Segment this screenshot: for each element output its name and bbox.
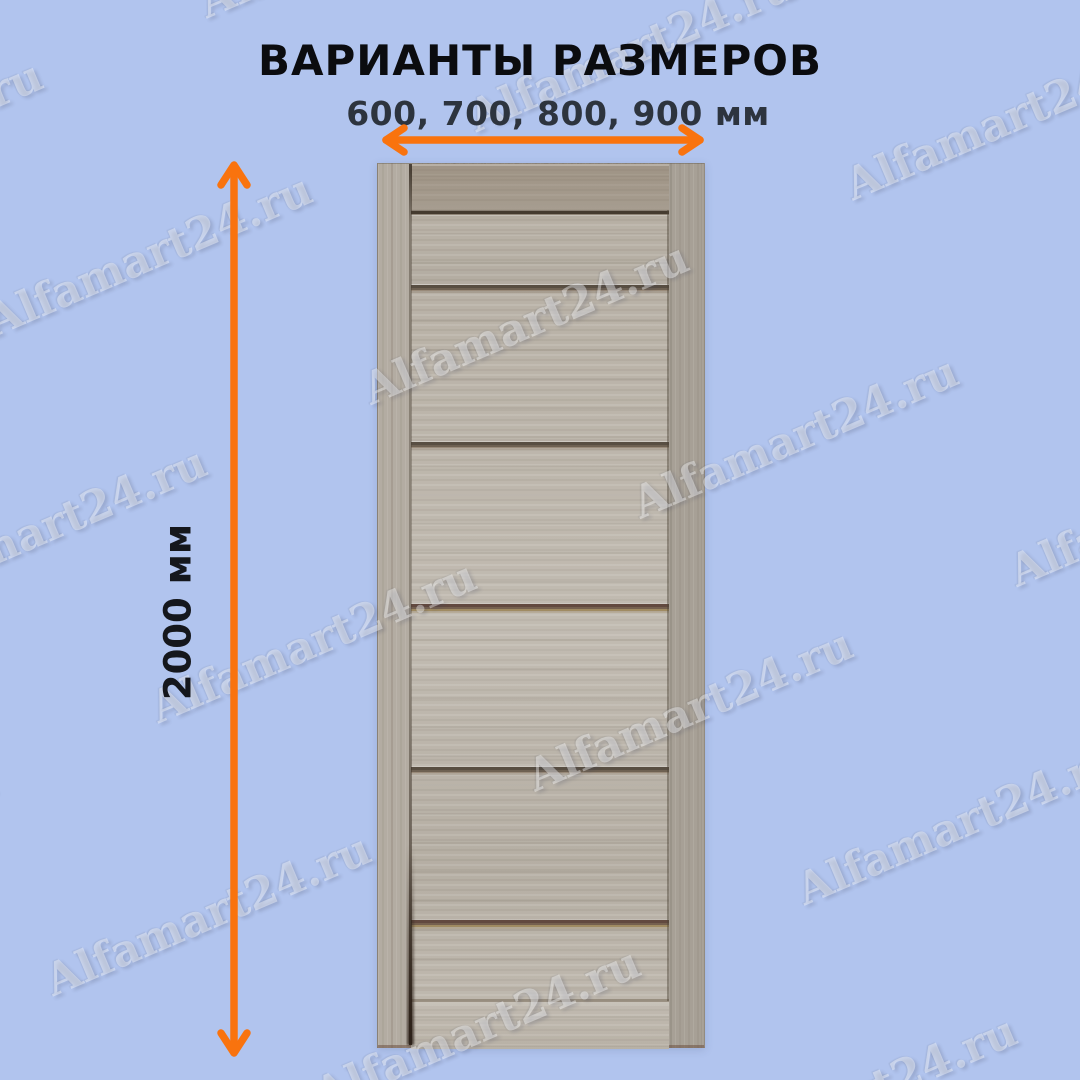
door-groove [411, 766, 669, 777]
watermark-text: Alfamart24.ru [0, 164, 319, 347]
page-title: ВАРИАНТЫ РАЗМЕРОВ [0, 36, 1080, 85]
height-dimension-label: 2000 мм [157, 524, 200, 700]
watermark-text: Alfamart24.ru [0, 755, 2, 938]
door-groove [411, 603, 669, 614]
door-bottom-rail [411, 1002, 669, 1049]
door-stile-seam-right [667, 210, 669, 1001]
watermark-text: Alfamart24.ru [1001, 414, 1080, 597]
height-arrow-icon [213, 158, 255, 1060]
door-top-rail [411, 164, 669, 212]
watermark-text: Alfamart24.ru [191, 0, 532, 28]
door-rail-seam-top [411, 210, 669, 216]
watermark-text: Alfamart24.ru [789, 732, 1080, 915]
watermark-text: Alfamart24.ru [37, 823, 378, 1006]
product-dimensions-banner: Alfamart24.ruAlfamart24.ruAlfamart24.ruA… [0, 0, 1080, 1080]
watermark-text: Alfamart24.ru [684, 1005, 1025, 1080]
door-groove [411, 919, 669, 930]
width-arrow-icon [376, 123, 710, 157]
door-stile-seam-left-shadow [407, 845, 414, 1045]
door-groove [411, 441, 669, 452]
door-image [377, 163, 705, 1048]
door-groove [411, 284, 669, 295]
door-panel-area [411, 164, 669, 1049]
